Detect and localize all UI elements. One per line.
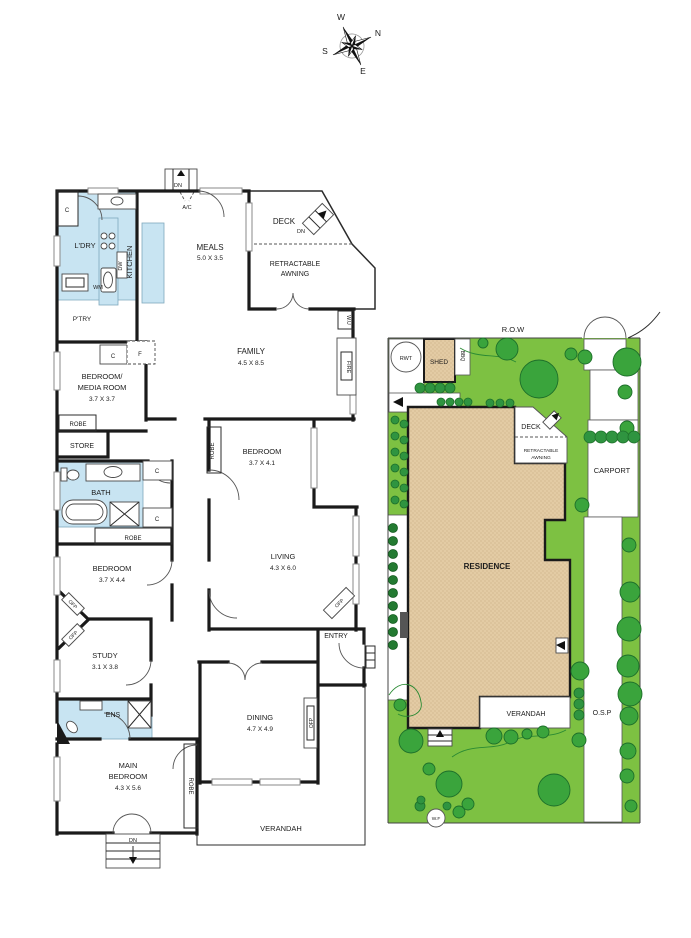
deck-dn-label: DN <box>297 229 305 235</box>
site-awning-label-2: AWNING <box>531 455 551 461</box>
laundry-label: L'DRY <box>74 241 95 250</box>
fire-label: FIRE <box>345 361 351 374</box>
main-bedroom-dims: 4.3 X 5.6 <box>115 785 141 792</box>
main-bedroom-label-2: BEDROOM <box>109 772 148 781</box>
bed-media-dims: 3.7 X 3.7 <box>89 396 115 403</box>
bath-c1-label: C <box>155 469 160 475</box>
study-label: STUDY <box>92 651 117 660</box>
compass-south-label: S <box>322 46 328 56</box>
meals-dims: 5.0 X 3.5 <box>197 255 223 262</box>
deck-awning-outline <box>249 191 375 309</box>
compass-west-label: W <box>337 12 345 22</box>
bath-label: BATH <box>91 488 110 497</box>
dining-dims: 4.7 X 4.9 <box>247 726 273 733</box>
bedroom3-label: BEDROOM <box>93 564 132 573</box>
bath-c2-label: C <box>155 517 160 523</box>
compass-rose: W N S E <box>322 12 381 76</box>
ac-label: A/C <box>182 205 191 211</box>
bath-shower <box>110 502 139 526</box>
kitchen-label: KITCHEN <box>125 246 134 279</box>
deck-steps <box>302 203 333 234</box>
site-plan: W.F R.O.W RWT SHED BBQ DECK RETRACTABLE … <box>388 312 660 827</box>
residence-label: RESIDENCE <box>464 562 511 571</box>
site-awning-label-1: RETRACTABLE <box>524 448 559 454</box>
water-feature: W.F <box>427 809 445 827</box>
living-dims: 4.3 X 6.0 <box>270 565 296 572</box>
main-bedroom-robe-label: ROBE <box>187 777 193 794</box>
compass-north-label: N <box>375 28 381 38</box>
cab-f-label: F <box>138 352 142 358</box>
bottom-stairs-dn-label: DN <box>129 838 137 844</box>
bath-robe-label: ROBE <box>124 536 141 542</box>
bed-media-label-2: MEDIA ROOM <box>78 383 127 392</box>
plan-drawing: W N S E <box>0 0 691 938</box>
shed-label: SHED <box>430 359 448 366</box>
carport-label: CARPORT <box>594 466 631 475</box>
bbq-label: BBQ <box>459 351 465 362</box>
deck-label: DECK <box>273 217 296 226</box>
gates <box>584 312 660 338</box>
compass-east-label: E <box>360 66 366 76</box>
study-dims: 3.1 X 3.8 <box>92 664 118 671</box>
row-label: R.O.W <box>502 325 525 334</box>
driveway-area <box>584 517 622 822</box>
closet-top-label: C <box>65 208 70 214</box>
cab-c-label: C <box>111 354 116 360</box>
awning-label-1: RETRACTABLE <box>270 261 321 268</box>
ens-shower <box>128 701 151 728</box>
floor-plan: DN A/C <box>54 169 375 868</box>
bed-media-label-1: BEDROOM/ <box>82 372 124 381</box>
pantry-label: P'TRY <box>73 316 92 323</box>
family-label: FAMILY <box>237 347 266 356</box>
ens-label: ENS <box>106 712 121 719</box>
meter-box <box>400 612 408 638</box>
verandah-label: VERANDAH <box>260 824 302 833</box>
site-deck <box>515 407 567 463</box>
bedroom3-dims: 3.7 X 4.4 <box>99 577 125 584</box>
dining-ofp-label: OFP <box>309 717 315 728</box>
osp-label: O.S.P <box>593 710 612 717</box>
bed-media-robe-label: ROBE <box>69 422 86 428</box>
dining-label: DINING <box>247 713 273 722</box>
bedroom2-dims: 3.7 X 4.1 <box>249 460 275 467</box>
main-bedroom-label-1: MAIN <box>119 761 138 770</box>
washer-label: WM <box>93 285 103 291</box>
wf-label: W.F <box>432 816 441 822</box>
bedroom2-robe-label: ROBE <box>210 442 216 459</box>
compass-star <box>324 18 380 74</box>
bottom-stairs: DN <box>106 834 160 868</box>
dishwasher-label: DW <box>118 261 124 271</box>
floorplan-page: W N S E <box>0 0 691 938</box>
entry-label: ENTRY <box>324 633 348 640</box>
store-label: STORE <box>70 443 94 450</box>
bedroom2-label: BEDROOM <box>243 447 282 456</box>
living-label: LIVING <box>271 552 296 561</box>
site-deck-label: DECK <box>521 424 541 431</box>
awning-label-2: AWNING <box>281 271 310 278</box>
meals-label: MEALS <box>196 243 223 252</box>
rwt-label: RWT <box>400 356 413 362</box>
family-dims: 4.5 X 8.5 <box>238 360 264 367</box>
site-verandah-label: VERANDAH <box>507 711 546 718</box>
top-stairs-dn-label: DN <box>174 183 182 189</box>
wu-label: W.U <box>345 315 351 325</box>
